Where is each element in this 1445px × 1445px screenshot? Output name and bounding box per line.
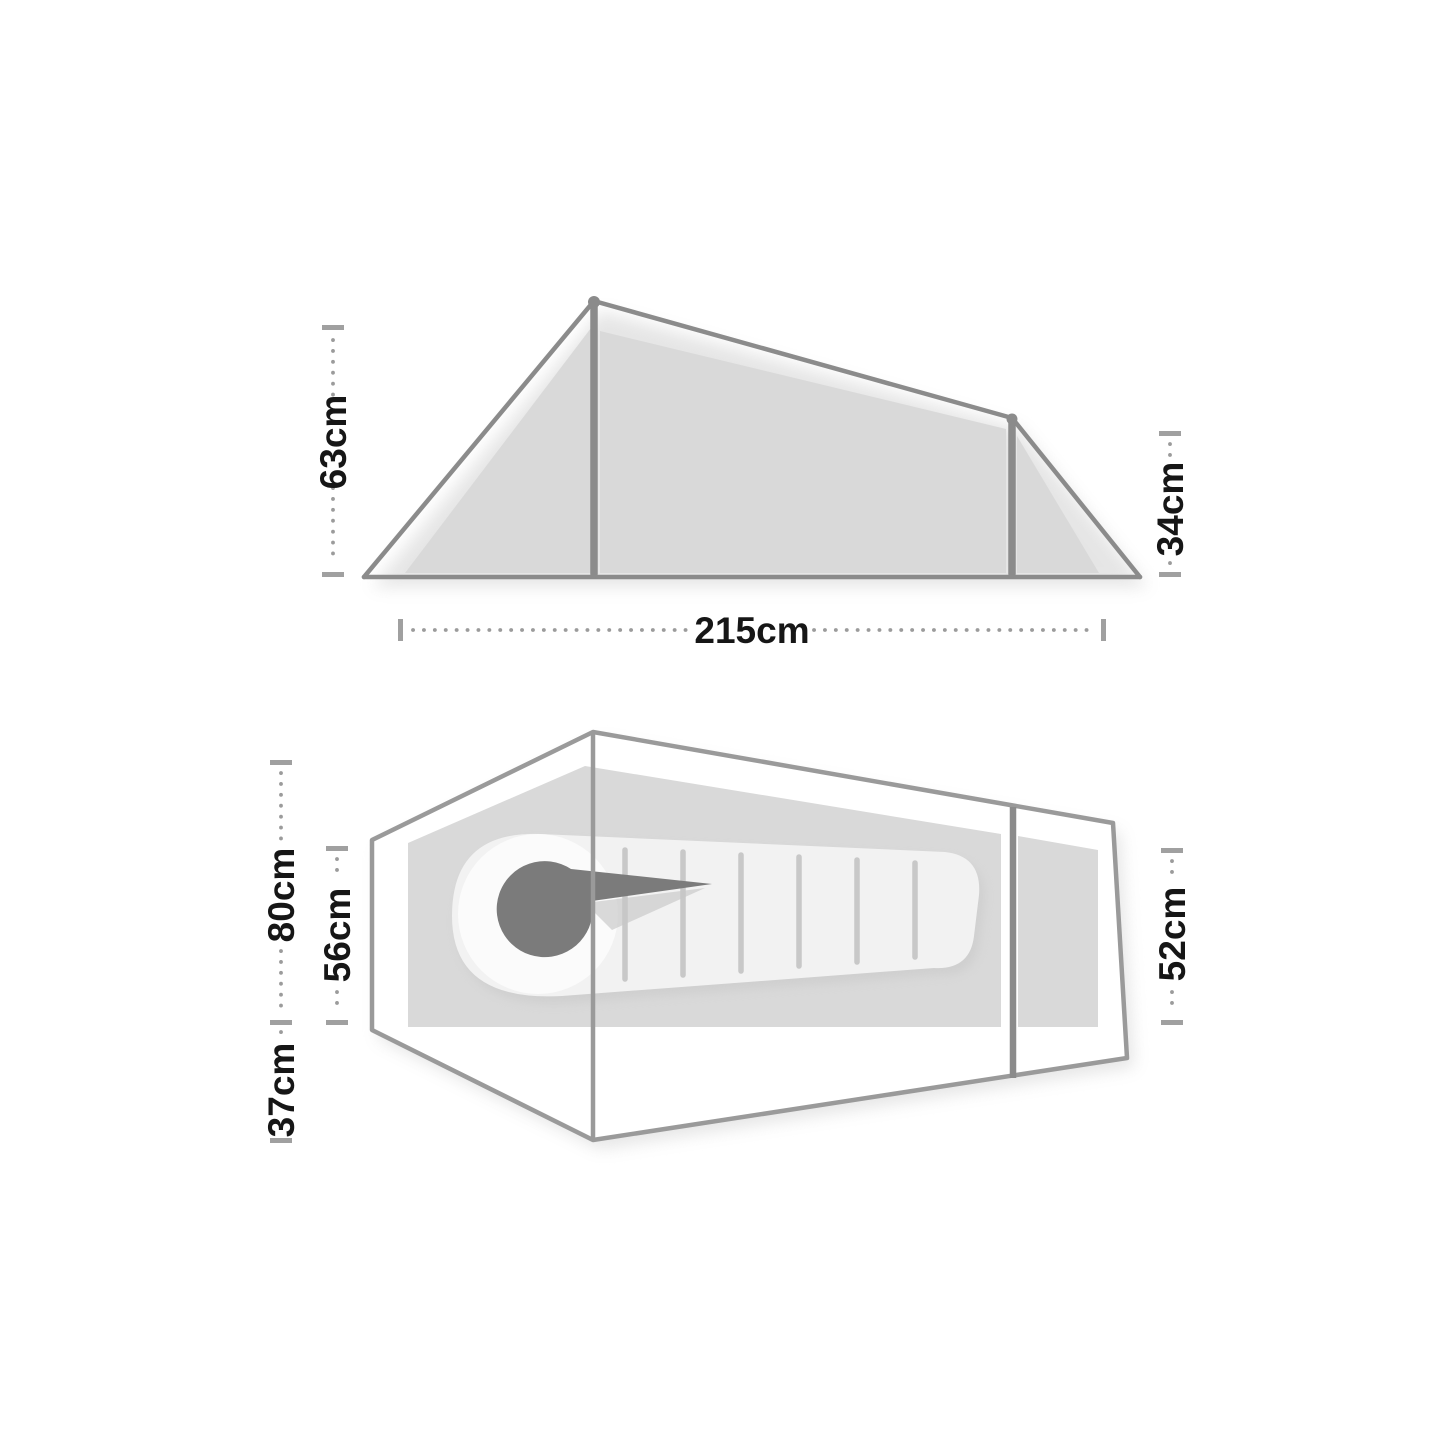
dim-length: 215cm <box>398 610 1106 651</box>
dim-label-length: 215cm <box>694 610 809 651</box>
dim-width-head-outer: 80cm <box>261 760 302 1025</box>
dim-tick <box>1161 1020 1183 1025</box>
tent-dimensions-diagram: 63cm 34cm 215cm <box>0 0 1445 1445</box>
plan-rear-footprint <box>1018 836 1098 1027</box>
side-rear-pole-tip <box>1007 414 1018 425</box>
dim-label-width-head-inner: 56cm <box>317 888 358 983</box>
dim-tick <box>322 325 344 330</box>
dim-tick <box>1159 431 1181 436</box>
dim-tick <box>1101 619 1106 641</box>
dim-tick <box>326 846 348 851</box>
side-elevation-view: 63cm 34cm 215cm <box>313 296 1191 651</box>
dim-label-porch-depth: 37cm <box>261 1043 302 1138</box>
dim-tick <box>1159 572 1181 577</box>
side-front-pole-tip <box>588 296 600 308</box>
dim-tick <box>1161 848 1183 853</box>
dim-label-height-front: 63cm <box>313 395 354 490</box>
dim-width-head-inner: 56cm <box>317 846 358 1025</box>
dim-height-front: 63cm <box>313 325 354 577</box>
dim-height-rear: 34cm <box>1150 431 1191 577</box>
dim-tick <box>270 1138 292 1143</box>
dim-tick <box>322 572 344 577</box>
dim-tick <box>270 1020 292 1025</box>
dim-tick <box>326 1020 348 1025</box>
dim-label-width-rear: 52cm <box>1152 887 1193 982</box>
dim-tick <box>398 619 403 641</box>
dim-width-rear: 52cm <box>1152 848 1193 1025</box>
dim-tick <box>270 760 292 765</box>
dim-label-height-rear: 34cm <box>1150 462 1191 557</box>
top-plan-view: 80cm 56cm 37cm 52cm <box>261 732 1193 1149</box>
dim-label-width-head-outer: 80cm <box>261 848 302 943</box>
dim-porch-depth: 37cm <box>261 1032 302 1143</box>
side-canopy-mid-panel <box>600 331 1006 573</box>
